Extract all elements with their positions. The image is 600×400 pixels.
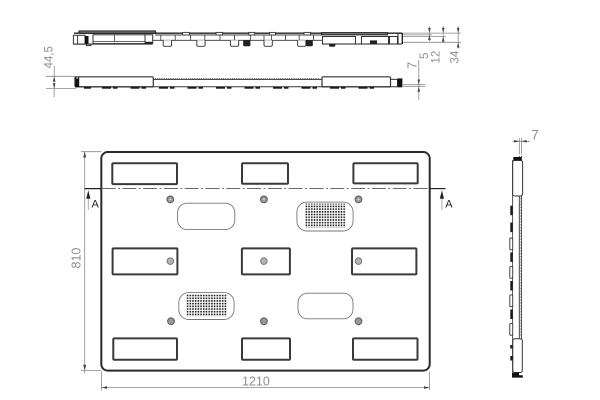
svg-text:1210: 1210 — [242, 375, 270, 389]
svg-text:44,5: 44,5 — [44, 46, 56, 68]
svg-text:5: 5 — [419, 53, 431, 59]
svg-text:7: 7 — [531, 128, 539, 143]
svg-text:12: 12 — [431, 51, 443, 64]
svg-text:A: A — [445, 199, 453, 211]
svg-text:810: 810 — [70, 248, 84, 269]
svg-text:7: 7 — [405, 62, 420, 69]
svg-text:34: 34 — [450, 50, 462, 63]
svg-text:A: A — [92, 199, 100, 211]
